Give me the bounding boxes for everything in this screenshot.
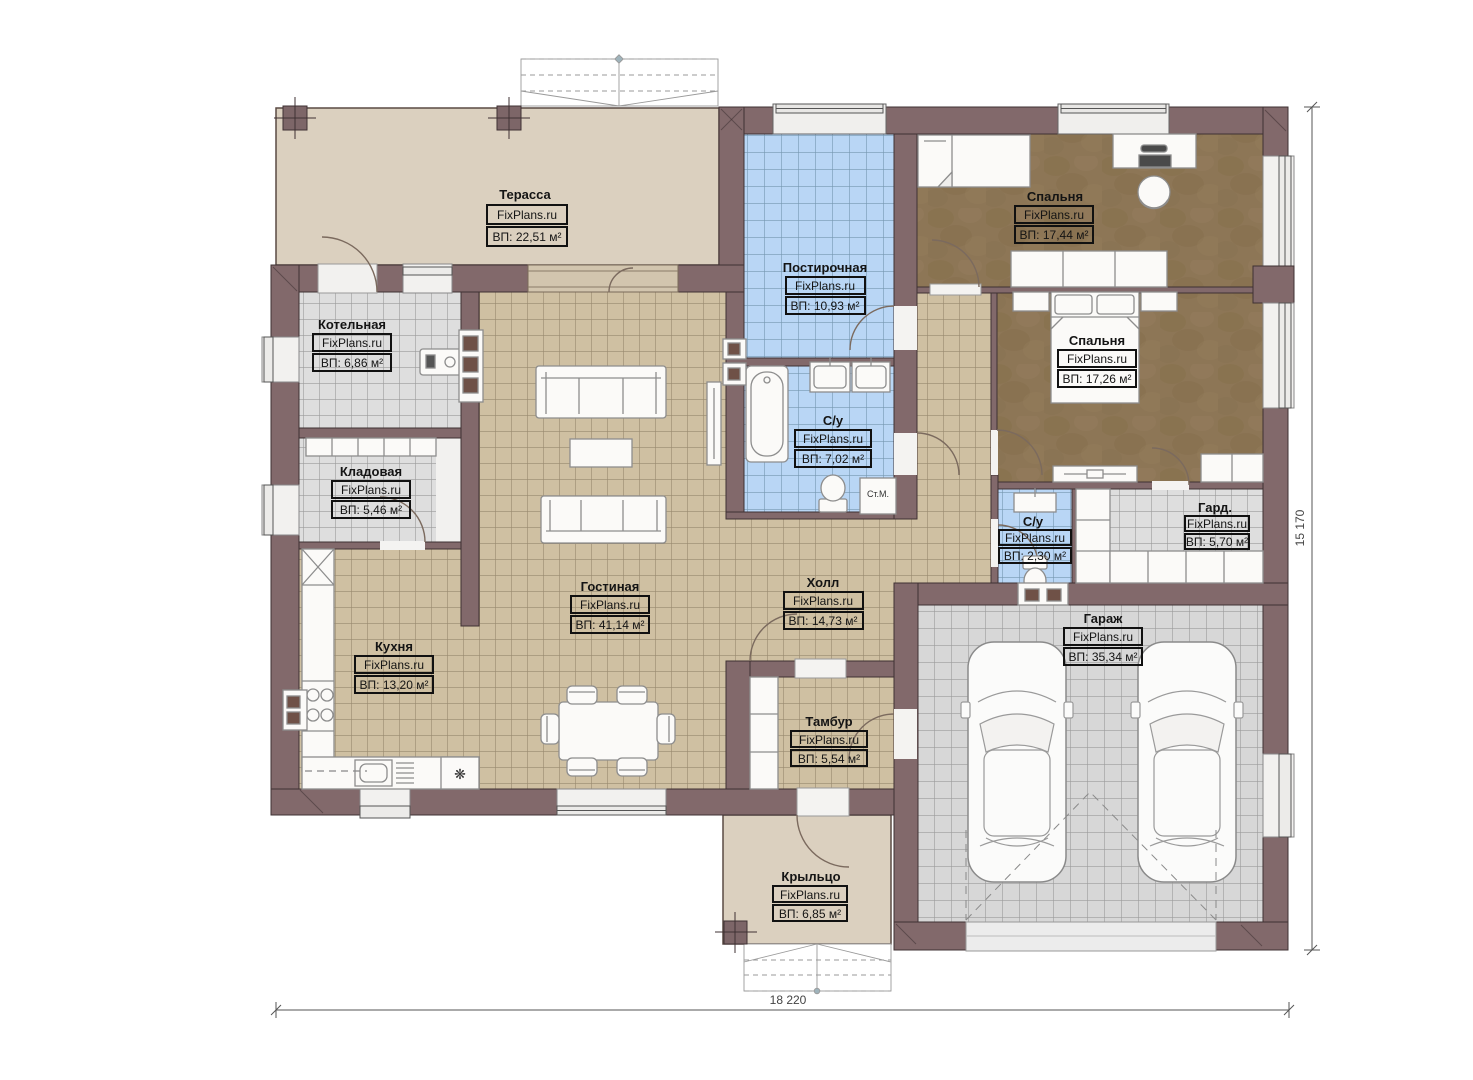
svg-text:Тамбур: Тамбур	[805, 714, 852, 729]
svg-text:Спальня: Спальня	[1069, 333, 1125, 348]
svg-text:ВП: 10,93 м²: ВП: 10,93 м²	[791, 299, 860, 313]
svg-text:ВП: 2,30 м²: ВП: 2,30 м²	[1004, 549, 1066, 563]
svg-text:ВП: 6,86 м²: ВП: 6,86 м²	[321, 356, 383, 370]
svg-text:FixPlans.ru: FixPlans.ru	[795, 279, 855, 293]
svg-text:ВП: 5,46 м²: ВП: 5,46 м²	[340, 503, 402, 517]
svg-text:ВП: 35,34 м²: ВП: 35,34 м²	[1069, 650, 1138, 664]
svg-text:ВП: 41,14 м²: ВП: 41,14 м²	[576, 618, 645, 632]
svg-text:Постирочная: Постирочная	[783, 260, 867, 275]
svg-text:FixPlans.ru: FixPlans.ru	[803, 432, 863, 446]
svg-text:18 220: 18 220	[770, 993, 807, 1007]
svg-text:Гард.: Гард.	[1198, 500, 1232, 515]
svg-text:ВП: 6,85 м²: ВП: 6,85 м²	[779, 907, 841, 921]
svg-text:Ст.М.: Ст.М.	[867, 489, 889, 499]
svg-text:FixPlans.ru: FixPlans.ru	[341, 483, 401, 497]
svg-text:С/у: С/у	[823, 413, 844, 428]
svg-text:FixPlans.ru: FixPlans.ru	[793, 594, 853, 608]
svg-text:ВП: 7,02 м²: ВП: 7,02 м²	[802, 452, 864, 466]
svg-text:FixPlans.ru: FixPlans.ru	[322, 336, 382, 350]
svg-text:ВП: 5,54 м²: ВП: 5,54 м²	[798, 752, 860, 766]
svg-text:FixPlans.ru: FixPlans.ru	[799, 733, 859, 747]
svg-text:ВП: 14,73 м²: ВП: 14,73 м²	[789, 614, 858, 628]
svg-text:Кухня: Кухня	[375, 639, 413, 654]
svg-text:ВП: 17,44 м²: ВП: 17,44 м²	[1020, 228, 1089, 242]
svg-text:Кладовая: Кладовая	[340, 464, 402, 479]
svg-text:Гостиная: Гостиная	[581, 579, 640, 594]
svg-text:FixPlans.ru: FixPlans.ru	[1187, 517, 1247, 531]
svg-text:15 170: 15 170	[1293, 509, 1307, 546]
svg-text:FixPlans.ru: FixPlans.ru	[1005, 531, 1065, 545]
svg-text:FixPlans.ru: FixPlans.ru	[1024, 208, 1084, 222]
svg-text:Гараж: Гараж	[1084, 611, 1124, 626]
svg-text:С/у: С/у	[1023, 514, 1044, 529]
svg-text:FixPlans.ru: FixPlans.ru	[1073, 630, 1133, 644]
svg-text:FixPlans.ru: FixPlans.ru	[780, 888, 840, 902]
svg-text:ВП: 13,20 м²: ВП: 13,20 м²	[360, 678, 429, 692]
svg-text:Крыльцо: Крыльцо	[781, 869, 840, 884]
svg-text:FixPlans.ru: FixPlans.ru	[364, 658, 424, 672]
svg-text:Терасса: Терасса	[499, 187, 551, 202]
svg-text:FixPlans.ru: FixPlans.ru	[1067, 352, 1127, 366]
svg-text:ВП: 5,70 м²: ВП: 5,70 м²	[1186, 535, 1248, 549]
svg-text:ВП: 17,26 м²: ВП: 17,26 м²	[1063, 372, 1132, 386]
svg-text:Холл: Холл	[807, 575, 840, 590]
svg-text:❋: ❋	[454, 766, 466, 782]
svg-text:ВП: 22,51 м²: ВП: 22,51 м²	[493, 230, 562, 244]
svg-text:FixPlans.ru: FixPlans.ru	[497, 208, 557, 222]
svg-text:FixPlans.ru: FixPlans.ru	[580, 598, 640, 612]
svg-text:Котельная: Котельная	[318, 317, 386, 332]
svg-text:Спальня: Спальня	[1027, 189, 1083, 204]
